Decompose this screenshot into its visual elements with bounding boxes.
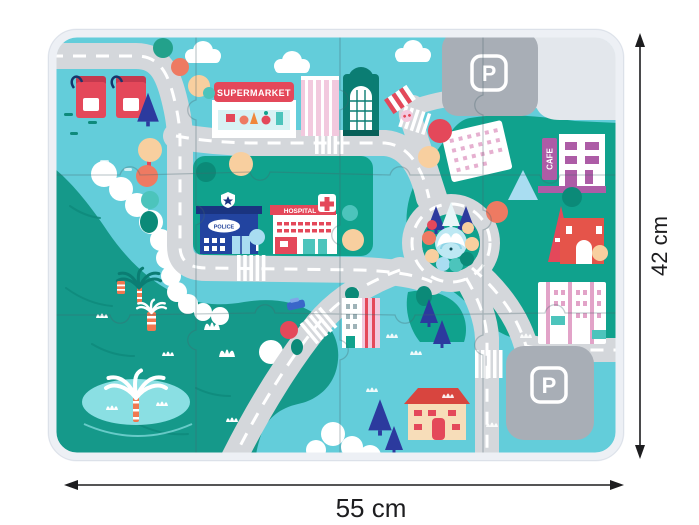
tree-icon bbox=[153, 38, 173, 58]
tree-icon bbox=[141, 191, 159, 209]
supermarket-building: SUPERMARKET bbox=[212, 82, 296, 138]
height-dimension: 42 cm bbox=[635, 33, 672, 459]
tree-icon bbox=[592, 245, 608, 261]
pink-building bbox=[301, 76, 339, 136]
tree-icon bbox=[203, 87, 215, 99]
hospital-sign-text: HOSPITAL bbox=[284, 208, 316, 215]
tree-icon bbox=[196, 162, 216, 182]
tree-icon bbox=[486, 201, 508, 223]
tree-icon bbox=[171, 58, 189, 76]
tree-icon bbox=[138, 138, 162, 162]
tree-icon bbox=[342, 205, 358, 221]
puzzle-mat: P P bbox=[48, 29, 624, 467]
arrow-left-icon bbox=[64, 480, 78, 490]
puzzle-playmat-illustration: P P bbox=[0, 0, 699, 525]
width-label: 55 cm bbox=[336, 493, 407, 523]
tree-icon bbox=[291, 339, 303, 355]
tree-icon bbox=[342, 229, 364, 251]
width-dimension: 55 cm bbox=[64, 480, 624, 523]
ladder-icon bbox=[117, 281, 125, 294]
parking-area-bottom: P bbox=[506, 346, 594, 440]
product-image: P P bbox=[0, 0, 699, 525]
tree-icon bbox=[280, 321, 298, 339]
supermarket-sign-text: SUPERMARKET bbox=[217, 88, 291, 98]
tree-icon bbox=[140, 211, 158, 233]
arrow-down-icon bbox=[635, 445, 645, 459]
tree-icon bbox=[418, 146, 440, 168]
tree-icon bbox=[428, 119, 452, 143]
height-label: 42 cm bbox=[647, 216, 672, 276]
arrow-right-icon bbox=[610, 480, 624, 490]
cafe-sign-text: CAFE bbox=[546, 147, 555, 169]
parking-sign-letter: P bbox=[542, 373, 557, 398]
mat-artwork: P P bbox=[50, 32, 619, 467]
house-building bbox=[404, 388, 470, 440]
parking-area-top: P bbox=[442, 32, 619, 120]
tree-icon bbox=[249, 229, 265, 245]
tree-icon bbox=[136, 165, 158, 187]
tree-icon bbox=[562, 187, 582, 207]
arrow-up-icon bbox=[635, 33, 645, 47]
police-sign-text: POLICE bbox=[214, 225, 235, 231]
parking-sign-letter: P bbox=[482, 61, 497, 86]
